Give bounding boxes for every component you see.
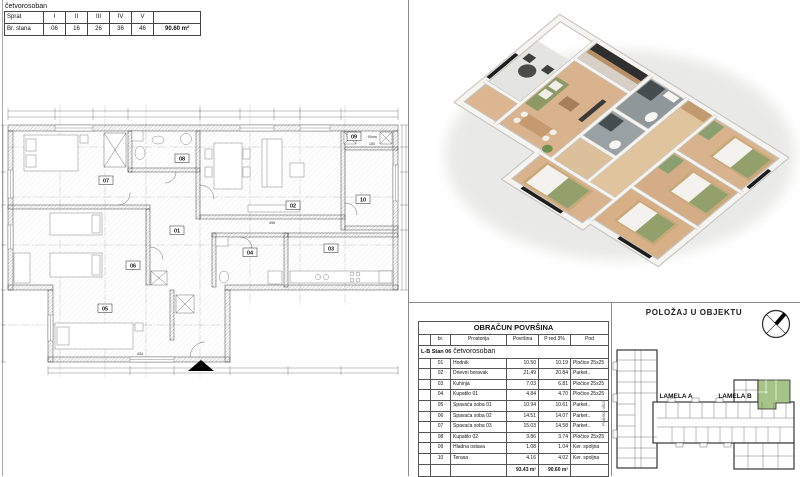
svg-text:496: 496 (269, 221, 275, 225)
unit-type-title: četvorosoban (5, 3, 201, 10)
group-label: L-B Stan 06 (421, 349, 451, 355)
row-label: Br. stana (5, 24, 44, 36)
row-label: Sprat (5, 12, 44, 24)
col-header: P red 3% (539, 335, 571, 346)
room-label-02: 02 (286, 201, 300, 210)
svg-text:03: 03 (328, 247, 334, 253)
unit-info-panel: četvorosoban Sprat I II III IV V Br. sta… (4, 3, 201, 36)
table-header-row: br. Prostorija Površina P red 3% Pod (419, 335, 609, 346)
svg-text:02: 02 (290, 204, 296, 210)
cell: V (132, 12, 154, 24)
lamela-a-label: LAMELA A (659, 393, 692, 400)
room-label-03: 03 (324, 244, 338, 253)
area-calc-table: OBRAČUN POVRŠINA br. Prostorija Površina… (418, 321, 609, 477)
svg-text:01: 01 (174, 229, 180, 235)
room-label-09: 09 (347, 132, 361, 141)
group-type: četvorosoban (453, 348, 495, 355)
floor-plan-3d-render (430, 0, 800, 302)
building-site-plan: LAMELA A LAMELA B (598, 302, 800, 476)
svg-text:06: 06 (130, 264, 136, 270)
table-row: Br. stana 06 16 26 36 46 90.60 m² (5, 24, 201, 36)
table-row: 07Spavaća soba 0315.0314.58Parket.. (419, 422, 609, 433)
table-row: 09Hladna ostava1.081.04Ker. spoljna (419, 443, 609, 454)
room-label-05: 05 (98, 304, 112, 313)
total-area-cell: 90.60 m² (154, 24, 201, 36)
group-row: L-B Stan 06 četvorosoban (419, 345, 609, 358)
table-row: 03Kuhinja7.036.81Pločice 25x25 (419, 379, 609, 390)
floor-apartment-table: Sprat I II III IV V Br. stana 06 16 26 3… (4, 11, 201, 36)
table-row: 08Kupatilo 023.863.74Pločice 25x25 (419, 432, 609, 443)
room-label-06: 06 (126, 261, 140, 270)
svg-text:04: 04 (247, 251, 254, 257)
total-reduced: 90.60 m² (539, 464, 571, 476)
empty-col (419, 335, 431, 346)
cell: 26 (88, 24, 110, 36)
room-label-01: 01 (170, 226, 184, 235)
total-povrsina: 93.43 m² (507, 464, 539, 476)
table-title-row: OBRAČUN POVRŠINA (419, 322, 609, 335)
col-header: Površina (507, 335, 539, 346)
lamela-b-label: LAMELA B (718, 393, 752, 400)
cell: 16 (66, 24, 88, 36)
svg-text:07: 07 (103, 179, 109, 185)
floor-plan-2d: 496 434 150 Klima 01 02 03 04 05 06 07 0… (0, 85, 410, 380)
cell: III (88, 12, 110, 24)
table-title: OBRAČUN POVRŠINA (419, 322, 609, 335)
cell: IV (110, 12, 132, 24)
table-row: 05Spavaća soba 0110.9410.61Parket.. (419, 400, 609, 411)
cell: 06 (44, 24, 66, 36)
svg-text:434: 434 (137, 352, 143, 356)
area-calc-panel: OBRAČUN POVRŠINA br. Prostorija Površina… (418, 321, 609, 477)
empty-cell (154, 12, 201, 24)
svg-text:150: 150 (369, 142, 375, 146)
svg-text:09: 09 (351, 135, 357, 141)
col-header: Prostorija (451, 335, 507, 346)
table-row: 06Spavaća soba 0214.5114.07Parket.. (419, 411, 609, 422)
position-panel: POLOŽAJ U OBJEKTU (598, 302, 800, 476)
cell: I (44, 12, 66, 24)
room-label-10: 10 (356, 195, 370, 204)
svg-text:10: 10 (360, 198, 366, 204)
cell: 46 (132, 24, 154, 36)
room-label-08: 08 (175, 154, 189, 163)
street-label: Pariska ulica (601, 377, 606, 449)
klima-label: Klima (368, 135, 377, 139)
table-row: 02Dnevni boravak21.4920.84Parket.. (419, 369, 609, 380)
table-row: Sprat I II III IV V (5, 12, 201, 24)
table-row: 01Hodnik10.5010.19Pločice 25x25 (419, 358, 609, 369)
table-row: 10Terasa4.164.02Ker. spoljna (419, 453, 609, 464)
room-label-07: 07 (99, 176, 113, 185)
table-row: 04Kupatilo 014.844.70Pločice 25x25 (419, 390, 609, 401)
svg-text:05: 05 (102, 307, 108, 313)
cell: II (66, 12, 88, 24)
col-header: br. (431, 335, 451, 346)
room-label-04: 04 (243, 248, 257, 257)
totals-row: 93.43 m² 90.60 m² (419, 464, 609, 476)
svg-text:08: 08 (179, 157, 185, 163)
cell: 36 (110, 24, 132, 36)
